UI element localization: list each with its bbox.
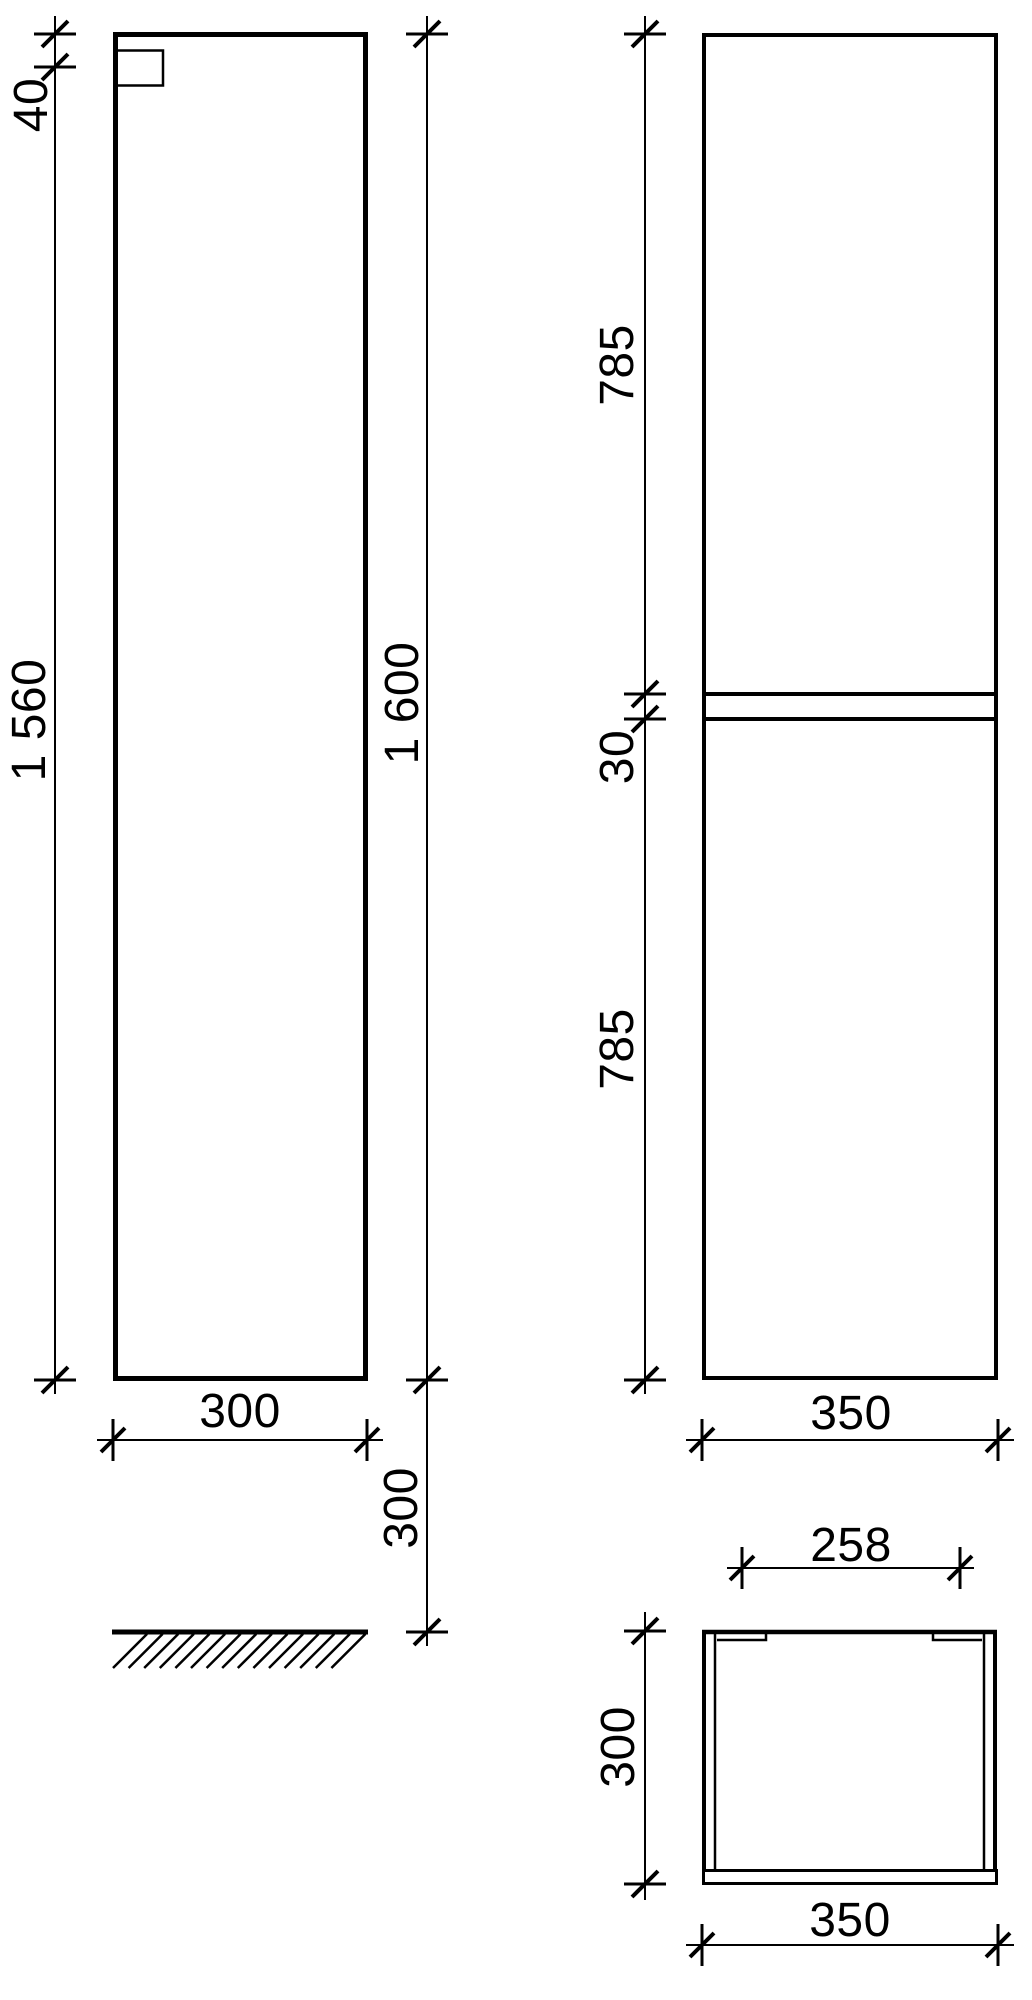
left-hinge-notch bbox=[717, 1634, 766, 1640]
front-view-body bbox=[704, 35, 996, 1378]
dim-label-top-inner-width: 258 bbox=[810, 1522, 892, 1570]
cabinet-technical-drawing: 40 1 560 1 600 300 300 785 30 785 350 25… bbox=[0, 0, 1032, 2000]
side-view bbox=[116, 35, 366, 1379]
dimension-ticks bbox=[34, 21, 1010, 1966]
dim-label-side-total-height: 1 600 bbox=[379, 642, 427, 765]
dim-label-front-upper-section: 785 bbox=[594, 324, 642, 406]
side-view-body bbox=[116, 35, 366, 1379]
dim-label-front-gap: 30 bbox=[594, 730, 642, 784]
dimension-lines bbox=[55, 16, 1014, 1945]
back-panel bbox=[704, 1871, 997, 1884]
floor-hatch bbox=[112, 1632, 368, 1668]
wall-bracket bbox=[116, 51, 163, 86]
dim-label-top-width: 350 bbox=[809, 1897, 891, 1945]
top-view bbox=[702, 1630, 997, 1884]
dim-label-side-body-height: 1 560 bbox=[6, 659, 54, 782]
drawing-geometry bbox=[0, 0, 1032, 2000]
dim-label-side-rail-offset: 40 bbox=[8, 78, 56, 132]
dim-label-front-lower-section: 785 bbox=[594, 1008, 642, 1090]
dim-label-top-depth: 300 bbox=[595, 1706, 643, 1788]
dim-label-side-depth: 300 bbox=[199, 1388, 281, 1436]
front-view bbox=[704, 35, 996, 1378]
dim-label-front-width: 350 bbox=[810, 1390, 892, 1438]
right-hinge-notch bbox=[933, 1634, 982, 1640]
dim-label-side-floor-clearance: 300 bbox=[378, 1467, 426, 1549]
